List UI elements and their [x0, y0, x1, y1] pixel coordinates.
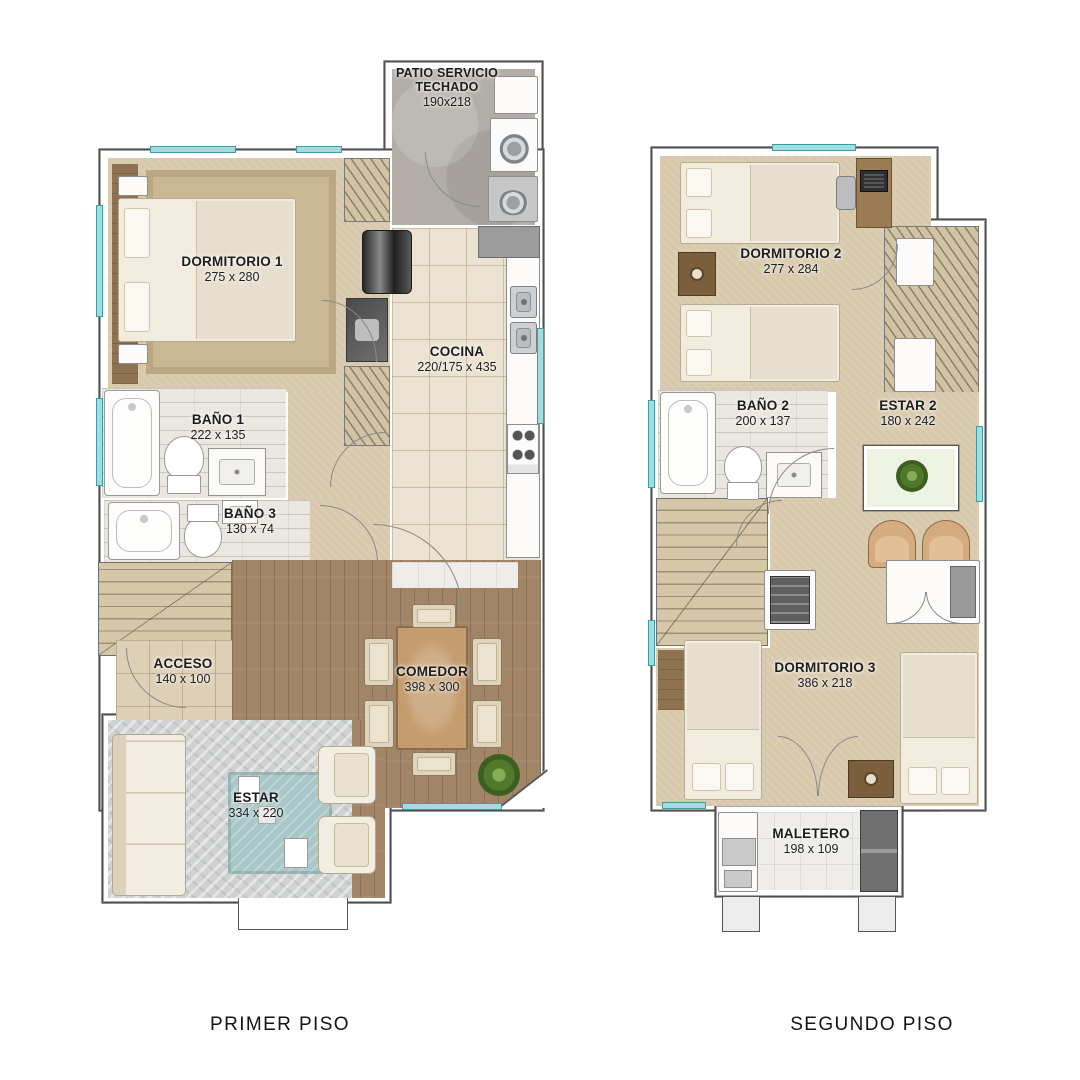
window [662, 802, 706, 809]
dining-chair [412, 752, 456, 776]
room-label-dormitorio-2: DORMITORIO 2 277 x 284 [710, 246, 872, 276]
plant-decor [896, 460, 928, 492]
room-label-acceso: ACCESO 140 x 100 [124, 656, 242, 686]
column-left [722, 896, 760, 932]
armchair [318, 816, 376, 874]
room-name: BAÑO 1 [162, 412, 274, 427]
desk-chair [836, 176, 856, 210]
window [296, 146, 342, 153]
kitchen-corner-counter [478, 226, 540, 258]
room-dims: 198 x 109 [748, 842, 874, 856]
window [96, 205, 103, 317]
coffee-table-decor [284, 838, 308, 868]
dining-chair [364, 700, 394, 748]
armchair [318, 746, 376, 804]
room-name: MALETERO [748, 826, 874, 841]
caption-first-floor: PRIMER PISO [130, 1014, 430, 1036]
room-label-bano-3: BAÑO 3 130 x 74 [198, 506, 302, 536]
desk [856, 158, 892, 228]
toilet [724, 446, 762, 500]
room-dims: 200 x 137 [704, 414, 822, 428]
room-dims: 398 x 300 [370, 680, 494, 694]
bed-duvet [750, 307, 837, 379]
shower-tub [108, 502, 180, 560]
window [772, 144, 856, 151]
closet-drawer-unit [896, 238, 934, 286]
nightstand [118, 176, 148, 196]
room-name: BAÑO 2 [704, 398, 822, 413]
room-label-estar: ESTAR 334 x 220 [198, 790, 314, 820]
room-name: DORMITORIO 3 [742, 660, 908, 675]
room-label-dormitorio-3: DORMITORIO 3 386 x 218 [742, 660, 908, 690]
room-dims: 180 x 242 [850, 414, 966, 428]
bathroom-vanity [208, 448, 266, 496]
window [648, 620, 655, 666]
room-dims: 334 x 220 [198, 806, 314, 820]
window [402, 803, 502, 810]
single-bed [900, 652, 978, 804]
room-dims: 220/175 x 435 [398, 360, 516, 374]
toilet [164, 436, 204, 494]
room-label-patio: PATIO SERVICIO TECHADO 190x218 [388, 66, 506, 109]
closet [344, 158, 390, 222]
room-name: PATIO SERVICIO TECHADO [388, 66, 506, 94]
room-dims: 190x218 [388, 95, 506, 109]
room-name: BAÑO 3 [198, 506, 302, 521]
room-name: ACCESO [124, 656, 242, 671]
dryer-machine [488, 176, 538, 222]
bay-window [238, 896, 348, 930]
caption-second-floor: SEGUNDO PISO [722, 1014, 1022, 1036]
room-dims: 130 x 74 [198, 522, 302, 536]
potted-plant [478, 754, 520, 796]
column-right [858, 896, 896, 932]
sofa [112, 734, 186, 896]
room-dims: 140 x 100 [124, 672, 242, 686]
room-dims: 222 x 135 [162, 428, 274, 442]
room-label-dormitorio-1: DORMITORIO 1 275 x 280 [152, 254, 312, 284]
window [537, 328, 544, 424]
room-dims: 275 x 280 [152, 270, 312, 284]
room-dims: 386 x 218 [742, 676, 908, 690]
room-name: DORMITORIO 1 [152, 254, 312, 269]
room-label-bano-1: BAÑO 1 222 x 135 [162, 412, 274, 442]
nightstand [118, 344, 148, 364]
window [648, 400, 655, 488]
room-label-estar-2: ESTAR 2 180 x 242 [850, 398, 966, 428]
storage-box [724, 870, 752, 888]
washing-machine [490, 118, 538, 172]
bathtub [104, 390, 160, 496]
room-label-maletero: MALETERO 198 x 109 [748, 826, 874, 856]
kitchen-sink [510, 286, 537, 318]
stove [507, 424, 539, 474]
water-heater [362, 230, 412, 294]
room-name: ESTAR [198, 790, 314, 805]
laptop [860, 170, 888, 192]
room-name: ESTAR 2 [850, 398, 966, 413]
room-name: COMEDOR [370, 664, 494, 679]
room-name: DORMITORIO 2 [710, 246, 872, 261]
room-label-cocina: COCINA 220/175 x 435 [398, 344, 516, 374]
closet-mirror-unit [894, 338, 936, 392]
window [976, 426, 983, 502]
single-bed [680, 162, 840, 244]
dormitorio3-wood-strip [658, 650, 684, 710]
single-bed [680, 304, 840, 382]
window [150, 146, 236, 153]
dining-chair [472, 700, 502, 748]
window [96, 398, 103, 486]
room-label-bano-2: BAÑO 2 200 x 137 [704, 398, 822, 428]
bed-duvet [750, 165, 837, 241]
bed-duvet [903, 655, 975, 738]
room-label-comedor: COMEDOR 398 x 300 [370, 664, 494, 694]
room-dims: 277 x 284 [710, 262, 872, 276]
floorplan-canvas: PATIO SERVICIO TECHADO 190x218 DORMITORI… [0, 0, 1080, 1080]
room-name: COCINA [398, 344, 516, 359]
shoe-rack [770, 576, 810, 624]
